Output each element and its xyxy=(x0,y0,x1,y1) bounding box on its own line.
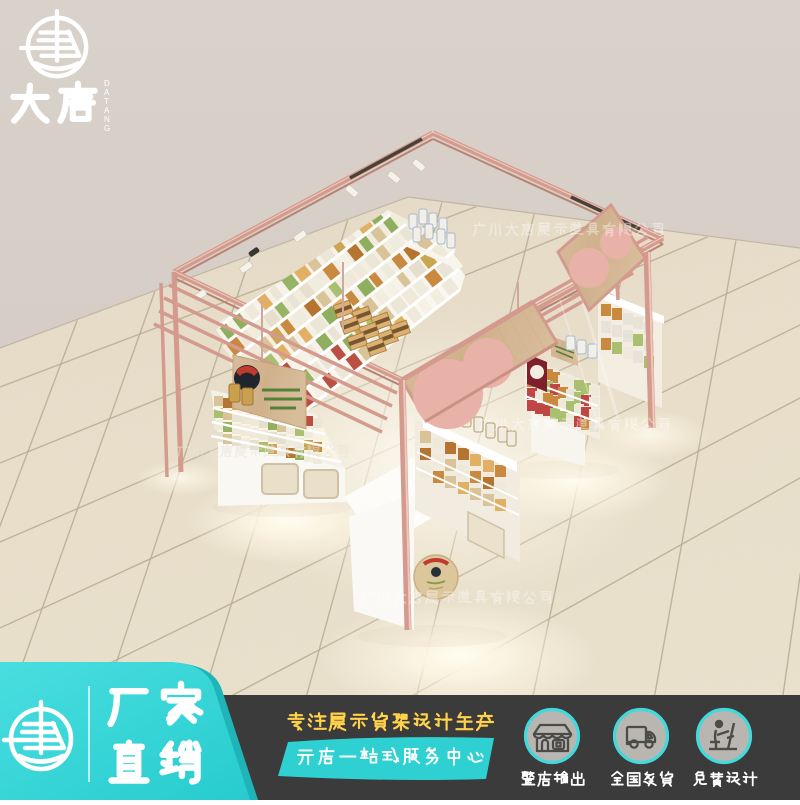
svg-text:DATANG: DATANG xyxy=(104,79,110,133)
